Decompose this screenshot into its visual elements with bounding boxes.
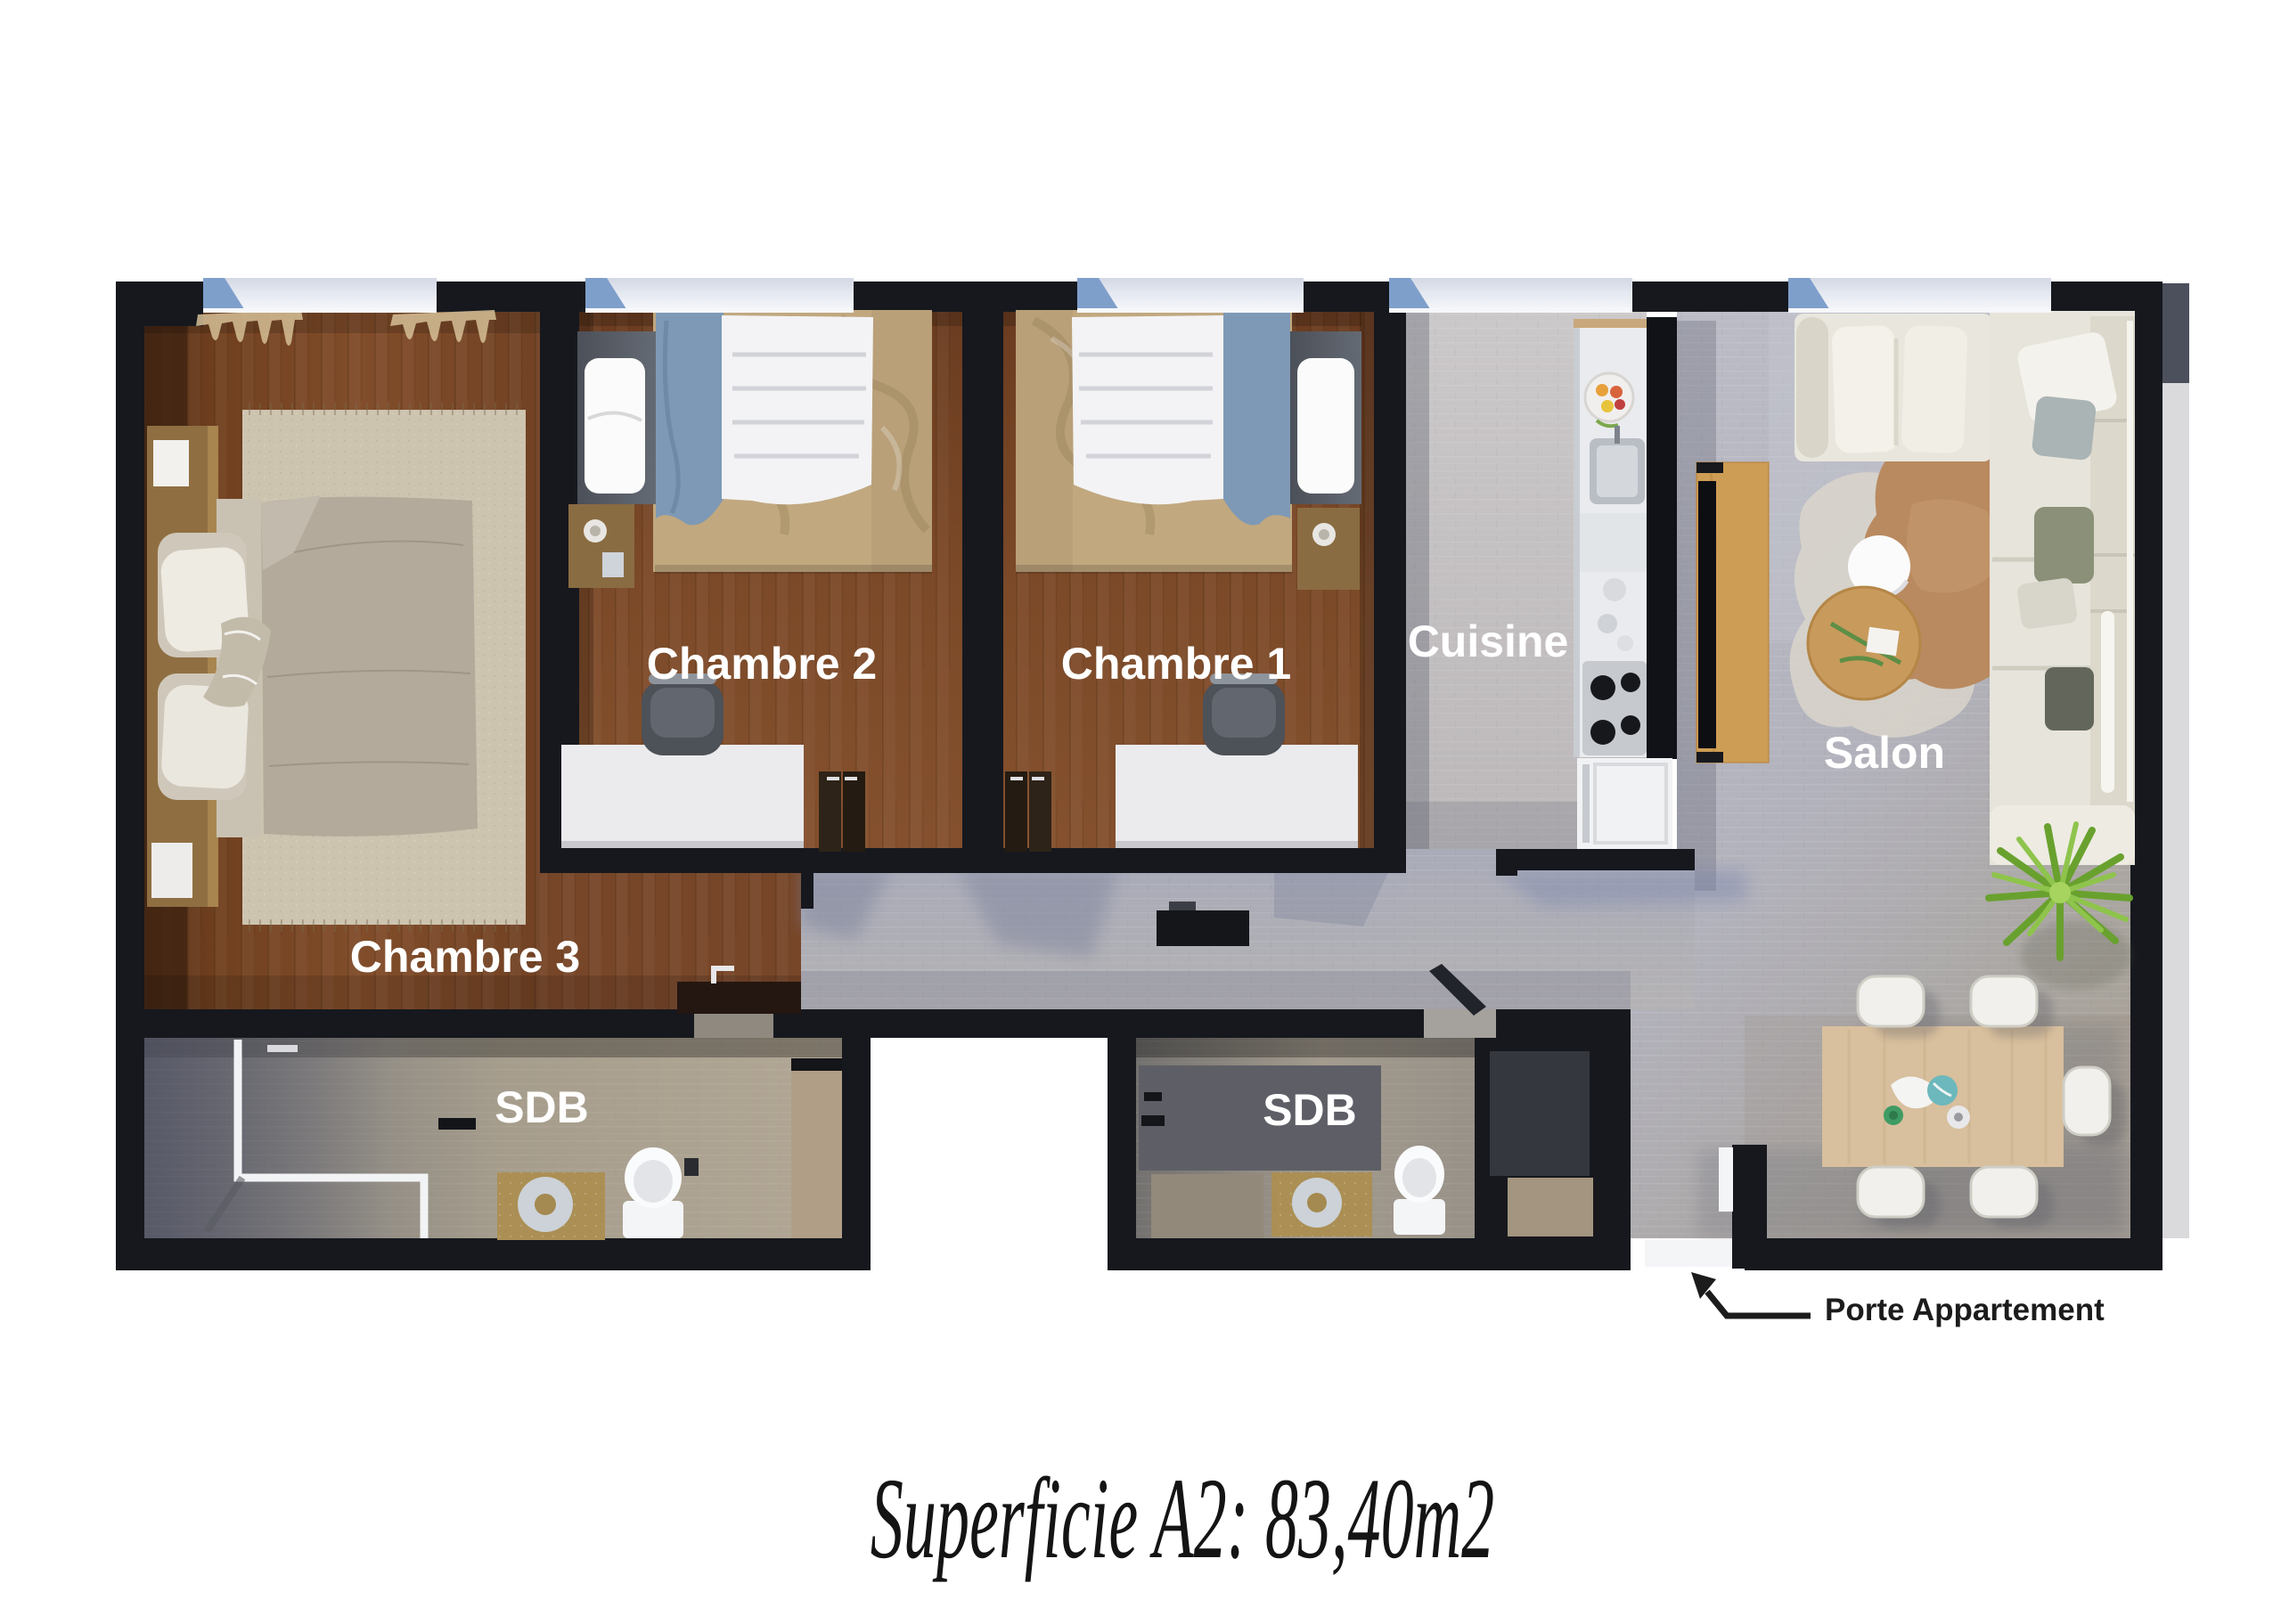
- svg-text:Salon: Salon: [1824, 728, 1945, 778]
- svg-text:Porte Appartement: Porte Appartement: [1825, 1293, 2105, 1327]
- svg-text:SDB: SDB: [1263, 1085, 1357, 1135]
- svg-text:Chambre 3: Chambre 3: [350, 932, 580, 982]
- svg-text:SDB: SDB: [495, 1082, 589, 1132]
- svg-text:Superficie A2: 83,40m2: Superficie A2: 83,40m2: [871, 1455, 1494, 1583]
- svg-text:Chambre 2: Chambre 2: [647, 639, 877, 689]
- svg-text:Chambre 1: Chambre 1: [1061, 639, 1291, 689]
- svg-text:Cuisine: Cuisine: [1408, 616, 1569, 666]
